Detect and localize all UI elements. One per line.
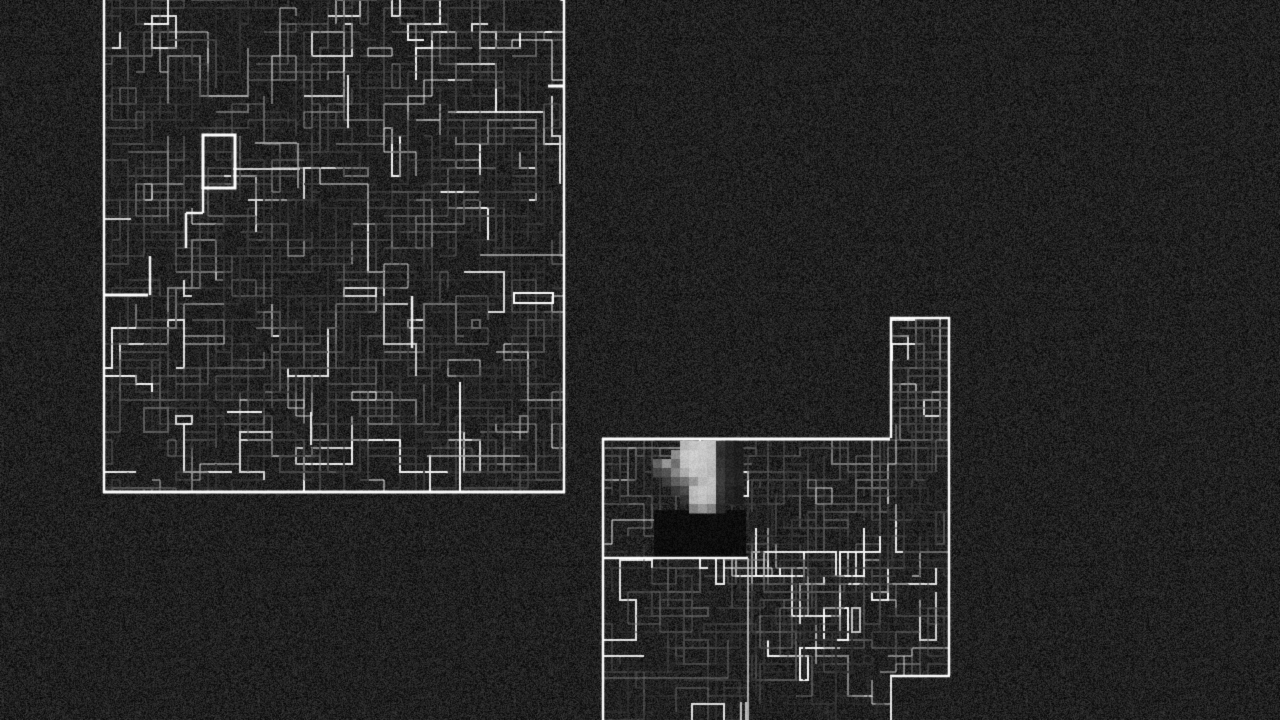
- game-scene: [0, 0, 1280, 720]
- dungeon-map-canvas[interactable]: [0, 0, 1280, 720]
